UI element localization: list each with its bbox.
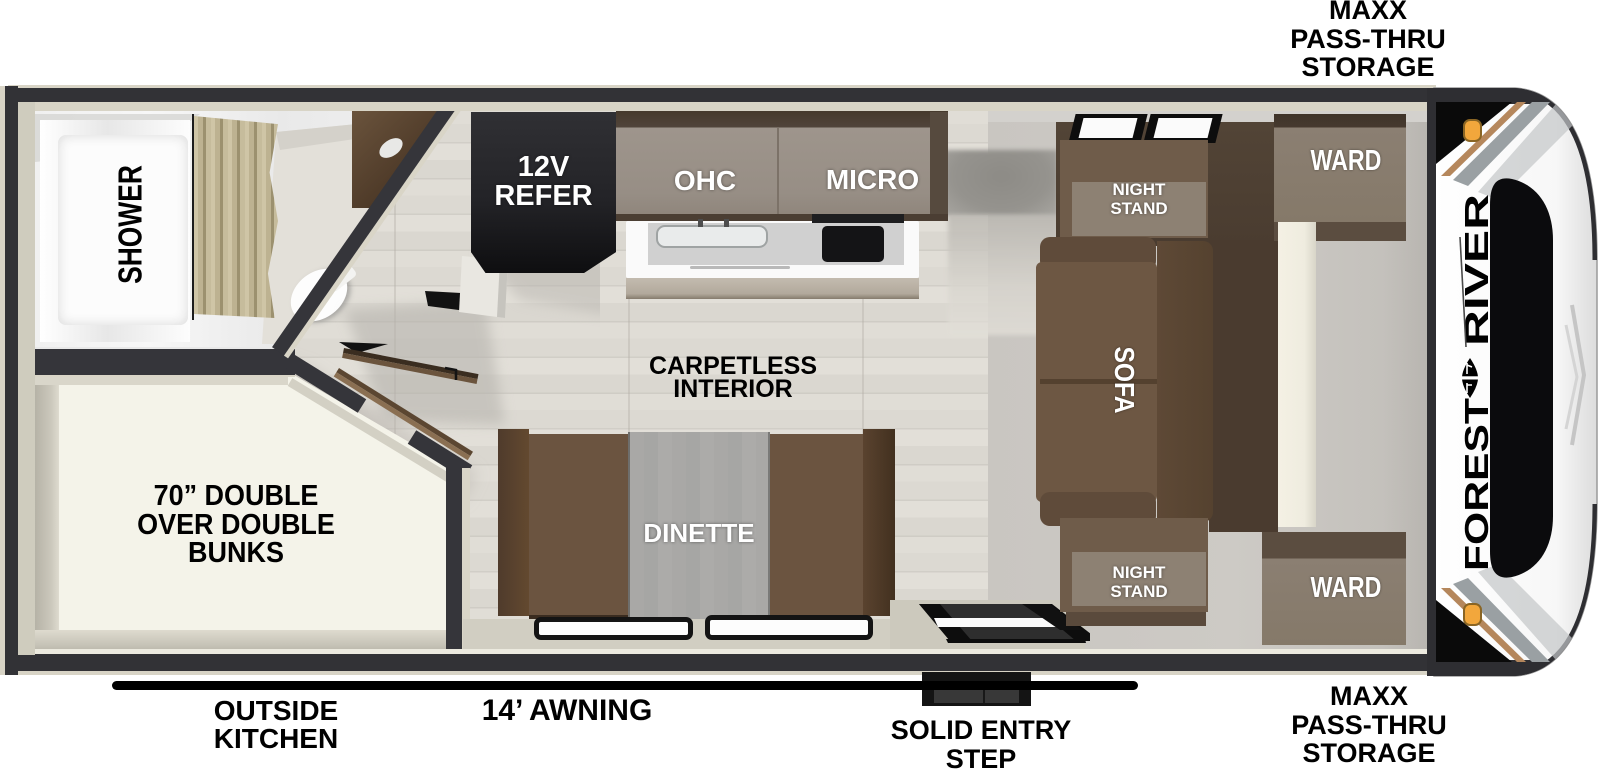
svg-text:RIVER: RIVER bbox=[1458, 194, 1495, 346]
svg-text:FOREST: FOREST bbox=[1458, 398, 1495, 571]
